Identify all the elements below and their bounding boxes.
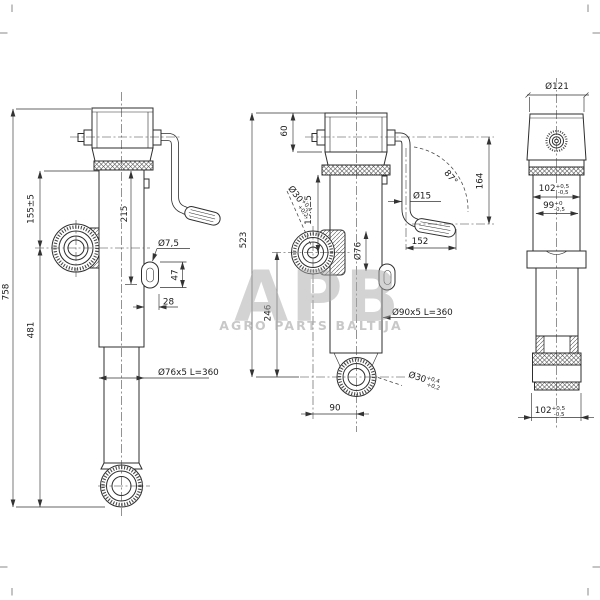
screenshot-root: 758 481 155±5 215 Ø7,5 47 28 Ø76x5 L=360 — [0, 0, 600, 600]
gear-cap — [92, 108, 153, 148]
knurl-band — [94, 161, 153, 170]
jack-technical-drawing: 758 481 155±5 215 Ø7,5 47 28 Ø76x5 L=360 — [0, 0, 600, 600]
dim-lower-height: 481 — [27, 322, 37, 339]
crank-handle-side — [157, 137, 222, 227]
dim-slot-length: 47 — [171, 269, 181, 280]
dim-body-height: 523 — [239, 232, 249, 249]
dim-overall-height: 758 — [2, 284, 12, 301]
eye-bore-value: Ø30 — [407, 369, 428, 385]
dim-cap-dia: Ø121 — [545, 81, 569, 92]
dim-eye-bore: Ø30+0,4+0,2 — [406, 369, 442, 392]
input-pin-left — [84, 130, 92, 145]
dim-handle-offset: 152 — [412, 237, 429, 247]
dim-crank-rod-dia: Ø15 — [413, 191, 431, 202]
dim-clamp-offset: 155±5 — [27, 194, 37, 224]
dim-foot-width: 102+0,5-0,5 — [535, 406, 566, 418]
dim-hole-dia: Ø7,5 — [158, 238, 179, 249]
crank-swing-arc — [414, 147, 468, 212]
input-pin-right — [153, 130, 161, 145]
view-side-left: 758 481 155±5 215 Ø7,5 47 28 Ø76x5 L=360 — [2, 92, 222, 516]
dim-crank-reach: 164 — [476, 172, 486, 189]
crank-handle-front — [393, 137, 457, 238]
watermark: APB AGRO PARTS BALTIJA — [219, 256, 403, 338]
dim-stroke-length: 215 — [120, 206, 130, 223]
watermark-subtitle: AGRO PARTS BALTIJA — [219, 318, 403, 333]
handle-clip — [142, 262, 159, 288]
dim-crank-swing-angle: 87° — [441, 168, 459, 186]
stop-screw — [144, 179, 149, 188]
gear-cap-front — [325, 113, 387, 152]
dim-cap-height: 60 — [280, 125, 290, 137]
dim-eye-offset: 90 — [329, 404, 341, 414]
dim-tube-spec: Ø76x5 L=360 — [158, 367, 219, 378]
view-back: Ø121 102+0,5-0,5 99+0-0,5 102+0,5-0,5 — [518, 78, 594, 428]
lower-tube-back — [536, 268, 578, 336]
dim-slot-offset: 28 — [163, 298, 174, 308]
